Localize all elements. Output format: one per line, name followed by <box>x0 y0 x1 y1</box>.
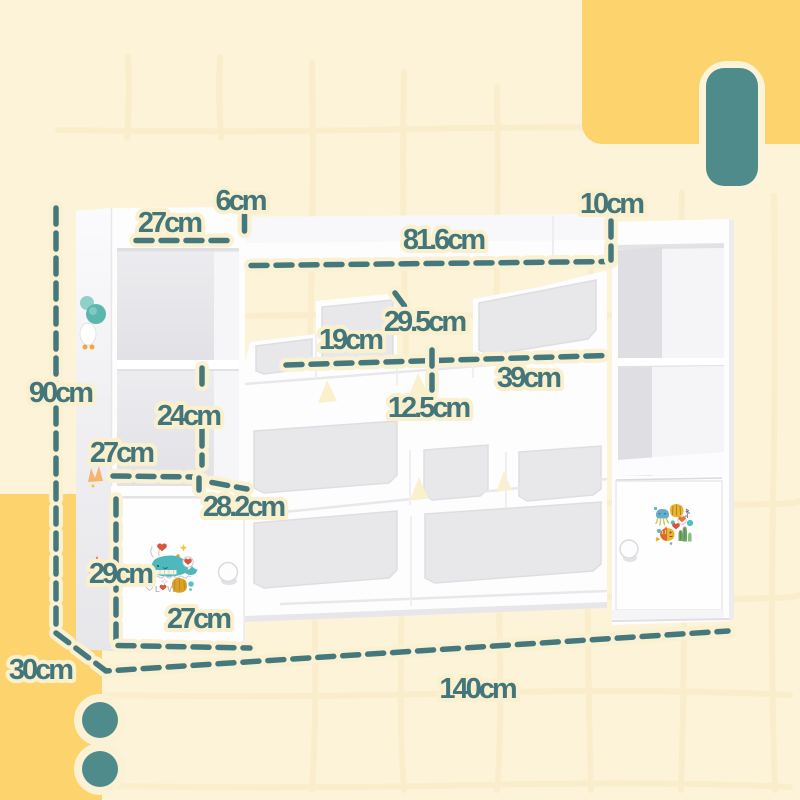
svg-text:27cm: 27cm <box>90 437 153 469</box>
svg-text:28.2cm: 28.2cm <box>203 491 285 523</box>
svg-text:29cm: 29cm <box>89 558 152 590</box>
svg-text:27cm: 27cm <box>138 207 201 239</box>
svg-text:6cm: 6cm <box>215 185 265 217</box>
svg-text:10cm: 10cm <box>580 188 643 220</box>
svg-text:39cm: 39cm <box>497 362 560 394</box>
svg-text:12.5cm: 12.5cm <box>388 392 470 424</box>
svg-text:30cm: 30cm <box>9 654 72 686</box>
svg-text:90cm: 90cm <box>29 377 92 409</box>
svg-text:81.6cm: 81.6cm <box>403 224 485 256</box>
svg-text:27cm: 27cm <box>167 603 230 635</box>
svg-text:L: L <box>155 585 160 594</box>
svg-text:29.5cm: 29.5cm <box>384 306 466 338</box>
svg-text:19cm: 19cm <box>319 324 382 356</box>
svg-text:140cm: 140cm <box>439 673 516 705</box>
svg-text:24cm: 24cm <box>157 400 220 432</box>
